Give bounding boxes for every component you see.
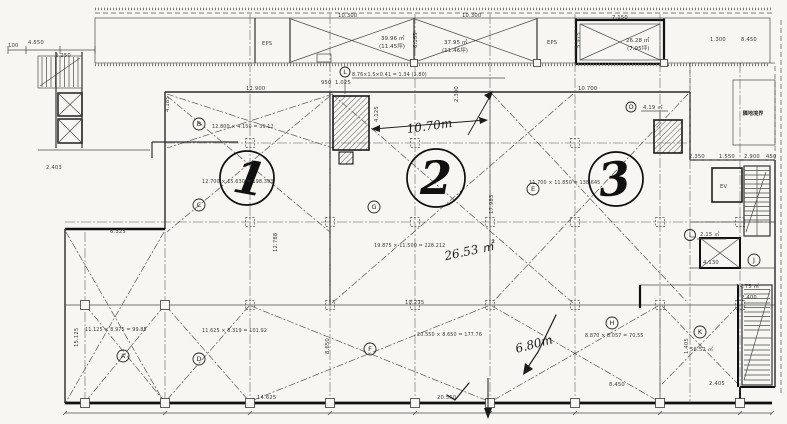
arrowhead-left bbox=[371, 125, 380, 132]
label-label-eps-left: EPS bbox=[262, 41, 272, 47]
label-shaft-annotation: 8.76×1.5×0.41 = 1.34 (3.80) bbox=[352, 72, 427, 78]
label-dim-10275: 10.275 bbox=[405, 300, 424, 306]
label-area-bay-b-tsubo: (11.46坪) bbox=[442, 46, 468, 54]
label-dim-15125: 15.125 bbox=[74, 328, 80, 347]
label-area-shaft-right: 4.19 ㎡ bbox=[643, 103, 663, 111]
label-area-bay-a-tsubo: (11.45坪) bbox=[379, 42, 405, 50]
label-grid-letter-f: F bbox=[368, 345, 372, 353]
label-dim-450: 450 bbox=[766, 154, 777, 160]
label-grid-letter-d: D bbox=[196, 355, 201, 363]
label-area-box-tsubo: (7.95坪) bbox=[627, 44, 649, 52]
label-dim-2350: 2.350 bbox=[689, 154, 705, 160]
label-formula-bay-b: 12.800 × 4.150 = 39.12 bbox=[212, 124, 274, 130]
label-dim-1300: 1.300 bbox=[710, 37, 726, 43]
hatched-shafts bbox=[333, 78, 682, 164]
label-dim-17983: 17.983 bbox=[489, 195, 495, 214]
label-dim-2300: 2.300 bbox=[454, 86, 460, 102]
label-zone-circle-2: 2 bbox=[419, 151, 452, 205]
label-dim-2405: 2.405 bbox=[709, 381, 725, 387]
label-label-eps-mid: EPS bbox=[547, 40, 557, 46]
label-dim-14625: 14.625 bbox=[257, 395, 276, 401]
label-zone-circle-3: 3 bbox=[596, 151, 633, 208]
label-grid-letter-o: O bbox=[628, 103, 633, 111]
label-dim-8450-bottom: 8.450 bbox=[609, 382, 625, 388]
label-dim-1550: 1.550 bbox=[719, 154, 735, 160]
label-grid-letter-k: K bbox=[698, 328, 703, 336]
label-dim-4185: 4.185 bbox=[165, 96, 171, 112]
top-strip bbox=[95, 18, 770, 65]
label-dim-4550: 4.550 bbox=[28, 40, 44, 46]
label-dim-100: 100 bbox=[8, 43, 19, 49]
floor-plan-drawing: 1004.5502.25010.30010.30039.96 ㎡(11.45坪)… bbox=[0, 0, 787, 424]
label-grid-letter-b: B bbox=[197, 120, 201, 128]
label-formula-bay-h: 8.870 × 8.057 = 70.55 bbox=[585, 333, 644, 339]
label-dim-1025: 1.025 bbox=[335, 80, 351, 86]
label-dim-6325: 6.325 bbox=[110, 229, 126, 235]
label-formula-zone-3: 11.700 × 11.850 = 138.645 bbox=[529, 180, 600, 186]
label-formula-bay-d: 11.625 × 8.319 = 101.92 bbox=[202, 328, 267, 334]
hand-arrowhead bbox=[523, 363, 533, 375]
text-labels: 1004.5502.25010.30010.30039.96 ㎡(11.45坪)… bbox=[8, 13, 777, 401]
label-dim-4130: 4.130 bbox=[703, 260, 719, 266]
label-grid-letter-g: G bbox=[371, 203, 376, 211]
stair-top-left bbox=[38, 52, 150, 150]
label-formula-bay-a2: 11.125 × 8.975 = 99.85 bbox=[85, 327, 147, 333]
label-grid-letter-j: J bbox=[752, 256, 755, 264]
label-dim-10700: 10.700 bbox=[578, 86, 597, 92]
label-dim-2250: 2.250 bbox=[55, 53, 71, 59]
label-formula-zone-1: 12.700 × 15.630 = 198.393 bbox=[202, 179, 273, 185]
label-grid-letter-l: L bbox=[343, 68, 347, 76]
label-label-ev: EV bbox=[720, 184, 727, 190]
label-area-bay-b: 37.95 ㎡ bbox=[444, 38, 468, 46]
label-dim-4125: 4.125 bbox=[374, 106, 380, 122]
label-dim-2900: 2.900 bbox=[744, 154, 760, 160]
label-formula-bay-f: 20.550 × 8.650 = 177.76 bbox=[417, 332, 482, 338]
label-dim-950: 950 bbox=[321, 80, 332, 86]
label-dim-10300-b: 10.300 bbox=[462, 13, 481, 19]
label-area-room-i: 2.15 ㎡ bbox=[700, 230, 720, 238]
label-grid-letter-e: E bbox=[531, 185, 535, 193]
label-grid-letter-h: H bbox=[610, 319, 615, 327]
label-dim-8450-top: 8.450 bbox=[741, 37, 757, 43]
label-dim-6155: 6.155 bbox=[413, 32, 419, 48]
label-area-room-k: 56.52 ㎡ bbox=[690, 345, 714, 353]
label-dim-20550: 20.550 bbox=[437, 395, 456, 401]
label-dim-2400: 2.400 bbox=[741, 295, 757, 301]
label-hand-680: 6.80m bbox=[514, 332, 554, 355]
label-formula-zone-2: 19.875 × 11.500 = 228.212 bbox=[374, 243, 445, 249]
label-hand-1070: 10.70m bbox=[406, 116, 453, 136]
floor-plan-sheet: 1004.5502.25010.30010.30039.96 ㎡(11.45坪)… bbox=[0, 0, 787, 424]
label-area-bay-a: 39.96 ㎡ bbox=[381, 34, 405, 42]
label-dim-2403: 2.403 bbox=[46, 165, 62, 171]
label-dim-12900: 12.900 bbox=[246, 86, 265, 92]
arrowhead-down bbox=[484, 408, 492, 419]
label-area-room-j: 14.75 ㎡ bbox=[736, 282, 760, 290]
label-grid-letter-a: A bbox=[121, 352, 126, 360]
label-label-kanji-box: 隣地境界 bbox=[743, 109, 765, 117]
label-dim-8650: 8.650 bbox=[325, 338, 331, 354]
label-dim-10300-a: 10.300 bbox=[338, 13, 357, 19]
label-dim-5975: 5.975 bbox=[576, 32, 582, 48]
arrowhead-right bbox=[479, 117, 488, 124]
label-dim-7150: 7.150 bbox=[612, 15, 628, 21]
label-grid-letter-c: C bbox=[197, 201, 202, 209]
label-grid-letter-i: I bbox=[689, 231, 691, 239]
label-area-box: 26.28 ㎡ bbox=[626, 36, 650, 44]
label-dim-1405: 1.405 bbox=[684, 338, 690, 354]
label-dim-12788: 12.788 bbox=[273, 233, 279, 252]
